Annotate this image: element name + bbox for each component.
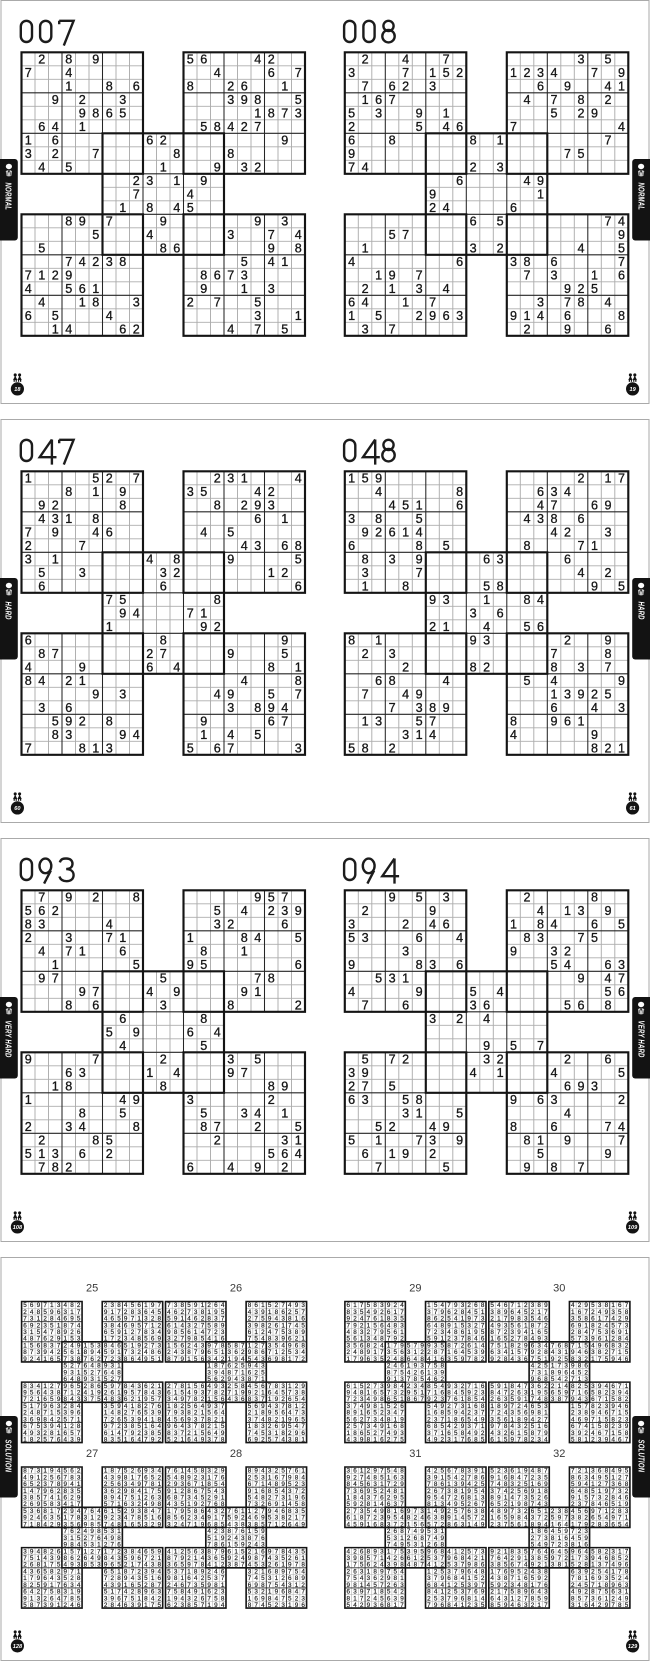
svg-text:7: 7	[133, 188, 140, 202]
svg-text:3: 3	[497, 553, 504, 567]
svg-text:1: 1	[416, 728, 423, 742]
svg-text:6: 6	[537, 1093, 544, 1107]
svg-text:5: 5	[254, 296, 261, 310]
svg-text:1: 1	[389, 1147, 396, 1161]
svg-text:8: 8	[523, 255, 530, 269]
svg-text:5: 5	[348, 742, 355, 756]
svg-text:7: 7	[564, 296, 571, 310]
svg-text:1: 1	[375, 269, 382, 283]
svg-text:7: 7	[577, 1161, 584, 1175]
svg-text:4: 4	[564, 485, 571, 499]
svg-text:5: 5	[268, 1437, 272, 1444]
svg-text:8: 8	[537, 918, 544, 932]
svg-text:9: 9	[510, 945, 517, 959]
svg-text:7: 7	[214, 1120, 221, 1134]
svg-text:4: 4	[194, 1437, 198, 1444]
svg-text:6: 6	[564, 309, 571, 323]
svg-text:9: 9	[402, 1147, 409, 1161]
svg-text:9: 9	[52, 93, 59, 107]
svg-text:2: 2	[456, 1012, 463, 1026]
svg-text:1: 1	[119, 931, 126, 945]
svg-text:8: 8	[474, 1356, 478, 1363]
svg-text:4: 4	[79, 255, 86, 269]
svg-text:7: 7	[254, 120, 261, 134]
svg-text:4: 4	[537, 309, 544, 323]
svg-text:6: 6	[38, 120, 45, 134]
svg-text:8: 8	[133, 891, 140, 905]
svg-text:5: 5	[281, 647, 288, 661]
svg-text:9: 9	[360, 1356, 364, 1363]
svg-text:3: 3	[227, 1053, 234, 1067]
svg-text:7: 7	[394, 1437, 398, 1444]
svg-text:6: 6	[373, 1521, 377, 1528]
svg-text:1: 1	[295, 309, 302, 323]
svg-text:4: 4	[227, 728, 234, 742]
svg-text:4: 4	[347, 1437, 351, 1444]
svg-text:2: 2	[65, 1161, 72, 1175]
svg-text:5: 5	[375, 1120, 382, 1134]
svg-text:3: 3	[106, 742, 113, 756]
svg-text:3: 3	[517, 1356, 521, 1363]
svg-text:9: 9	[144, 1356, 148, 1363]
svg-text:1: 1	[362, 715, 369, 729]
svg-text:3: 3	[551, 1562, 555, 1569]
svg-text:5: 5	[200, 120, 207, 134]
svg-text:9: 9	[434, 1437, 438, 1444]
svg-text:2: 2	[268, 904, 275, 918]
svg-text:5: 5	[353, 1521, 357, 1528]
svg-text:1: 1	[241, 945, 248, 959]
svg-text:5: 5	[200, 1107, 207, 1121]
svg-text:8: 8	[65, 1080, 72, 1094]
svg-text:3: 3	[577, 661, 584, 675]
svg-text:4: 4	[523, 93, 530, 107]
svg-text:8: 8	[414, 1562, 418, 1569]
svg-text:8: 8	[173, 553, 180, 567]
svg-text:8: 8	[598, 1521, 602, 1528]
svg-text:7: 7	[106, 931, 113, 945]
svg-text:3: 3	[348, 1066, 355, 1080]
svg-text:6: 6	[38, 904, 45, 918]
svg-text:5: 5	[119, 107, 126, 121]
svg-text:2: 2	[214, 620, 221, 634]
svg-text:5: 5	[52, 309, 59, 323]
svg-text:9: 9	[181, 1356, 185, 1363]
svg-text:6: 6	[362, 1147, 369, 1161]
svg-text:9: 9	[119, 485, 126, 499]
svg-text:1: 1	[362, 242, 369, 256]
svg-text:6: 6	[550, 255, 557, 269]
svg-text:27: 27	[86, 1448, 98, 1460]
svg-text:3: 3	[214, 918, 221, 932]
svg-text:2: 2	[441, 1437, 445, 1444]
svg-text:1: 1	[461, 1602, 465, 1609]
svg-text:8: 8	[25, 674, 32, 688]
svg-text:6: 6	[187, 1026, 194, 1040]
svg-text:7: 7	[564, 147, 571, 161]
svg-text:7: 7	[214, 296, 221, 310]
svg-text:1: 1	[550, 688, 557, 702]
svg-text:4: 4	[146, 228, 153, 242]
svg-text:9: 9	[65, 891, 72, 905]
svg-text:3: 3	[65, 728, 72, 742]
svg-text:4: 4	[347, 1521, 351, 1528]
svg-text:3: 3	[443, 593, 450, 607]
svg-text:4: 4	[429, 918, 436, 932]
svg-text:1: 1	[578, 1602, 582, 1609]
svg-text:9: 9	[295, 904, 302, 918]
svg-text:4: 4	[221, 1602, 225, 1609]
svg-text:2: 2	[133, 174, 140, 188]
svg-text:1: 1	[52, 958, 59, 972]
svg-text:7: 7	[577, 931, 584, 945]
svg-text:7: 7	[604, 1120, 611, 1134]
svg-text:7: 7	[254, 972, 261, 986]
svg-text:3: 3	[348, 66, 355, 80]
svg-text:7: 7	[362, 999, 369, 1013]
svg-text:5: 5	[348, 931, 355, 945]
svg-text:5: 5	[268, 1602, 272, 1609]
svg-text:2: 2	[79, 715, 86, 729]
svg-text:2: 2	[362, 647, 369, 661]
svg-text:3: 3	[181, 1602, 185, 1609]
svg-text:5: 5	[43, 1437, 47, 1444]
svg-text:4: 4	[402, 53, 409, 67]
svg-text:7: 7	[389, 323, 396, 337]
svg-text:9: 9	[50, 1602, 54, 1609]
svg-text:4: 4	[454, 1602, 458, 1609]
svg-text:9: 9	[187, 958, 194, 972]
svg-text:5: 5	[443, 1161, 450, 1175]
svg-text:7: 7	[523, 269, 530, 283]
svg-text:4: 4	[429, 1120, 436, 1134]
svg-text:1: 1	[106, 620, 113, 634]
svg-text:1: 1	[25, 134, 32, 148]
svg-text:6: 6	[25, 309, 32, 323]
svg-text:7: 7	[429, 715, 436, 729]
svg-text:6: 6	[510, 201, 517, 215]
svg-text:8: 8	[604, 999, 611, 1013]
svg-text:2: 2	[456, 66, 463, 80]
svg-text:4: 4	[295, 228, 302, 242]
svg-text:8: 8	[38, 647, 45, 661]
svg-text:7: 7	[416, 566, 423, 580]
svg-text:7: 7	[254, 1602, 258, 1609]
svg-text:6: 6	[187, 1161, 194, 1175]
svg-text:4: 4	[625, 1521, 629, 1528]
svg-text:4: 4	[550, 526, 557, 540]
svg-text:8: 8	[214, 593, 221, 607]
svg-text:4: 4	[214, 66, 221, 80]
svg-text:8: 8	[221, 1437, 225, 1444]
svg-text:6: 6	[201, 1356, 205, 1363]
svg-text:3: 3	[618, 701, 625, 715]
svg-text:9: 9	[416, 107, 423, 121]
svg-text:7: 7	[241, 1562, 245, 1569]
svg-text:6: 6	[301, 1602, 305, 1609]
svg-text:9: 9	[348, 958, 355, 972]
svg-text:4: 4	[241, 539, 248, 553]
svg-text:6: 6	[295, 958, 302, 972]
svg-text:6: 6	[348, 134, 355, 148]
svg-text:2: 2	[254, 161, 261, 175]
svg-text:1: 1	[604, 472, 611, 486]
svg-text:5: 5	[119, 593, 126, 607]
svg-text:4: 4	[348, 985, 355, 999]
svg-text:9: 9	[429, 188, 436, 202]
svg-text:6: 6	[456, 958, 463, 972]
svg-text:2: 2	[402, 661, 409, 675]
svg-text:6: 6	[577, 999, 584, 1013]
svg-text:1: 1	[92, 485, 99, 499]
svg-text:3: 3	[577, 53, 584, 67]
svg-text:5: 5	[604, 53, 611, 67]
svg-text:6: 6	[119, 945, 126, 959]
svg-text:9: 9	[92, 53, 99, 67]
svg-text:8: 8	[254, 701, 261, 715]
svg-text:4: 4	[38, 945, 45, 959]
svg-text:3: 3	[106, 255, 113, 269]
svg-text:7: 7	[281, 107, 288, 121]
svg-text:9: 9	[510, 309, 517, 323]
svg-text:5: 5	[295, 931, 302, 945]
svg-text:8: 8	[474, 1437, 478, 1444]
svg-text:7: 7	[133, 472, 140, 486]
svg-text:6: 6	[167, 1602, 171, 1609]
svg-text:6: 6	[367, 1356, 371, 1363]
svg-text:2: 2	[497, 242, 504, 256]
svg-text:2: 2	[92, 255, 99, 269]
svg-text:6: 6	[348, 296, 355, 310]
svg-text:3: 3	[510, 255, 517, 269]
svg-text:1: 1	[537, 1134, 544, 1148]
svg-text:6: 6	[268, 1356, 272, 1363]
svg-text:2: 2	[52, 499, 59, 513]
svg-text:6: 6	[254, 512, 261, 526]
svg-text:5: 5	[90, 1562, 94, 1569]
svg-text:3: 3	[461, 1521, 465, 1528]
svg-text:6: 6	[456, 255, 463, 269]
svg-text:3: 3	[604, 526, 611, 540]
svg-text:8: 8	[558, 1396, 562, 1403]
svg-text:3: 3	[550, 945, 557, 959]
svg-text:5: 5	[25, 904, 32, 918]
svg-text:6: 6	[348, 1093, 355, 1107]
svg-text:1: 1	[288, 1602, 292, 1609]
svg-text:9: 9	[158, 1521, 162, 1528]
svg-text:8: 8	[160, 1080, 167, 1094]
svg-text:6: 6	[79, 1147, 86, 1161]
svg-text:28: 28	[230, 1448, 242, 1460]
svg-text:6: 6	[604, 958, 611, 972]
svg-text:3: 3	[362, 566, 369, 580]
svg-text:8: 8	[402, 580, 409, 594]
svg-text:3: 3	[348, 918, 355, 932]
svg-text:3: 3	[470, 999, 477, 1013]
svg-text:1: 1	[92, 282, 99, 296]
svg-text:8: 8	[389, 674, 396, 688]
svg-text:9: 9	[301, 1521, 305, 1528]
svg-text:4: 4	[254, 485, 261, 499]
svg-text:6: 6	[483, 553, 490, 567]
svg-text:2: 2	[281, 1161, 288, 1175]
svg-text:7: 7	[517, 1437, 521, 1444]
svg-text:5: 5	[375, 309, 382, 323]
svg-text:7: 7	[375, 1161, 382, 1175]
svg-text:1: 1	[25, 472, 32, 486]
svg-text:5: 5	[577, 147, 584, 161]
svg-text:4: 4	[618, 1120, 625, 1134]
svg-text:7: 7	[92, 147, 99, 161]
svg-text:8: 8	[106, 80, 113, 94]
svg-text:9: 9	[443, 701, 450, 715]
svg-text:5: 5	[416, 715, 423, 729]
svg-text:7: 7	[604, 134, 611, 148]
svg-text:5: 5	[564, 999, 571, 1013]
svg-text:6: 6	[380, 1602, 384, 1609]
svg-text:4: 4	[268, 255, 275, 269]
svg-text:4: 4	[577, 242, 584, 256]
svg-text:4: 4	[295, 1521, 299, 1528]
svg-text:7: 7	[443, 53, 450, 67]
svg-text:7: 7	[402, 228, 409, 242]
svg-text:3: 3	[429, 958, 436, 972]
svg-text:4: 4	[523, 512, 530, 526]
svg-text:2: 2	[591, 688, 598, 702]
svg-text:6: 6	[133, 80, 140, 94]
svg-text:9: 9	[443, 1120, 450, 1134]
svg-text:9: 9	[254, 891, 261, 905]
svg-text:5: 5	[497, 1602, 501, 1609]
svg-text:3: 3	[591, 1080, 598, 1094]
svg-text:5: 5	[604, 985, 611, 999]
svg-text:9: 9	[604, 904, 611, 918]
svg-text:8: 8	[295, 674, 302, 688]
svg-text:3: 3	[373, 1602, 377, 1609]
svg-text:8: 8	[510, 1120, 517, 1134]
svg-text:9: 9	[227, 688, 234, 702]
svg-text:3: 3	[84, 1396, 88, 1403]
svg-text:3: 3	[571, 1602, 575, 1609]
svg-text:7: 7	[25, 66, 32, 80]
svg-text:5: 5	[402, 499, 409, 513]
svg-text:8: 8	[497, 580, 504, 594]
svg-text:9: 9	[483, 1039, 490, 1053]
svg-text:2: 2	[38, 53, 45, 67]
svg-text:9: 9	[416, 985, 423, 999]
svg-text:5: 5	[454, 1356, 458, 1363]
svg-text:7: 7	[268, 1521, 272, 1528]
svg-text:1: 1	[92, 742, 99, 756]
svg-text:9: 9	[618, 66, 625, 80]
svg-text:6: 6	[564, 1080, 571, 1094]
svg-text:8: 8	[200, 945, 207, 959]
svg-text:4: 4	[254, 1107, 261, 1121]
svg-text:5: 5	[470, 985, 477, 999]
svg-text:5: 5	[25, 1147, 32, 1161]
svg-text:1: 1	[281, 1107, 288, 1121]
svg-text:6: 6	[483, 999, 490, 1013]
svg-text:8: 8	[65, 53, 72, 67]
svg-text:9: 9	[604, 1147, 611, 1161]
svg-text:4: 4	[181, 1521, 185, 1528]
svg-text:9: 9	[523, 1161, 530, 1175]
svg-text:7: 7	[510, 120, 517, 134]
svg-text:8: 8	[92, 296, 99, 310]
svg-text:8: 8	[52, 728, 59, 742]
svg-text:3: 3	[281, 215, 288, 229]
svg-text:3: 3	[447, 1356, 451, 1363]
svg-text:2: 2	[25, 539, 32, 553]
svg-text:8: 8	[367, 1437, 371, 1444]
svg-text:8: 8	[268, 1080, 275, 1094]
svg-text:3: 3	[443, 891, 450, 905]
svg-text:3: 3	[97, 1562, 101, 1569]
svg-text:26: 26	[230, 1283, 242, 1295]
svg-text:1: 1	[523, 309, 530, 323]
svg-text:7: 7	[227, 742, 234, 756]
svg-text:9: 9	[77, 1437, 81, 1444]
svg-text:8: 8	[84, 1562, 88, 1569]
svg-text:4: 4	[510, 728, 517, 742]
svg-text:8: 8	[577, 93, 584, 107]
svg-text:2: 2	[92, 891, 99, 905]
svg-text:1: 1	[537, 188, 544, 202]
svg-text:4: 4	[37, 1356, 41, 1363]
svg-text:9: 9	[92, 688, 99, 702]
svg-text:4: 4	[544, 1437, 548, 1444]
svg-text:6: 6	[618, 269, 625, 283]
svg-text:1: 1	[510, 66, 517, 80]
svg-text:6: 6	[375, 93, 382, 107]
svg-text:3: 3	[470, 607, 477, 621]
svg-text:7: 7	[618, 255, 625, 269]
svg-text:9: 9	[429, 309, 436, 323]
svg-text:1: 1	[564, 1562, 568, 1569]
svg-text:1: 1	[429, 66, 436, 80]
svg-text:5: 5	[119, 1107, 126, 1121]
svg-text:4: 4	[133, 728, 140, 742]
svg-text:3: 3	[254, 309, 261, 323]
svg-text:9: 9	[577, 688, 584, 702]
svg-text:2: 2	[174, 1521, 178, 1528]
svg-text:6: 6	[160, 580, 167, 594]
svg-text:9: 9	[360, 1521, 364, 1528]
svg-text:3: 3	[389, 553, 396, 567]
svg-text:5: 5	[194, 1602, 198, 1609]
svg-text:2: 2	[577, 107, 584, 121]
svg-text:4: 4	[38, 674, 45, 688]
svg-text:1: 1	[124, 1437, 128, 1444]
svg-text:5: 5	[200, 1039, 207, 1053]
svg-text:9: 9	[65, 715, 72, 729]
svg-text:4: 4	[537, 593, 544, 607]
svg-text:6: 6	[380, 1437, 384, 1444]
svg-text:1: 1	[454, 1437, 458, 1444]
svg-text:4: 4	[38, 161, 45, 175]
svg-text:1: 1	[25, 1093, 32, 1107]
svg-text:3: 3	[295, 107, 302, 121]
svg-text:7: 7	[160, 647, 167, 661]
svg-text:8: 8	[558, 1562, 562, 1569]
svg-text:6: 6	[248, 1437, 252, 1444]
svg-text:9: 9	[591, 107, 598, 121]
svg-text:2: 2	[275, 1602, 279, 1609]
svg-text:9: 9	[456, 1134, 463, 1148]
svg-text:4: 4	[227, 1161, 234, 1175]
svg-text:8: 8	[248, 1602, 252, 1609]
svg-text:2: 2	[38, 1134, 45, 1148]
